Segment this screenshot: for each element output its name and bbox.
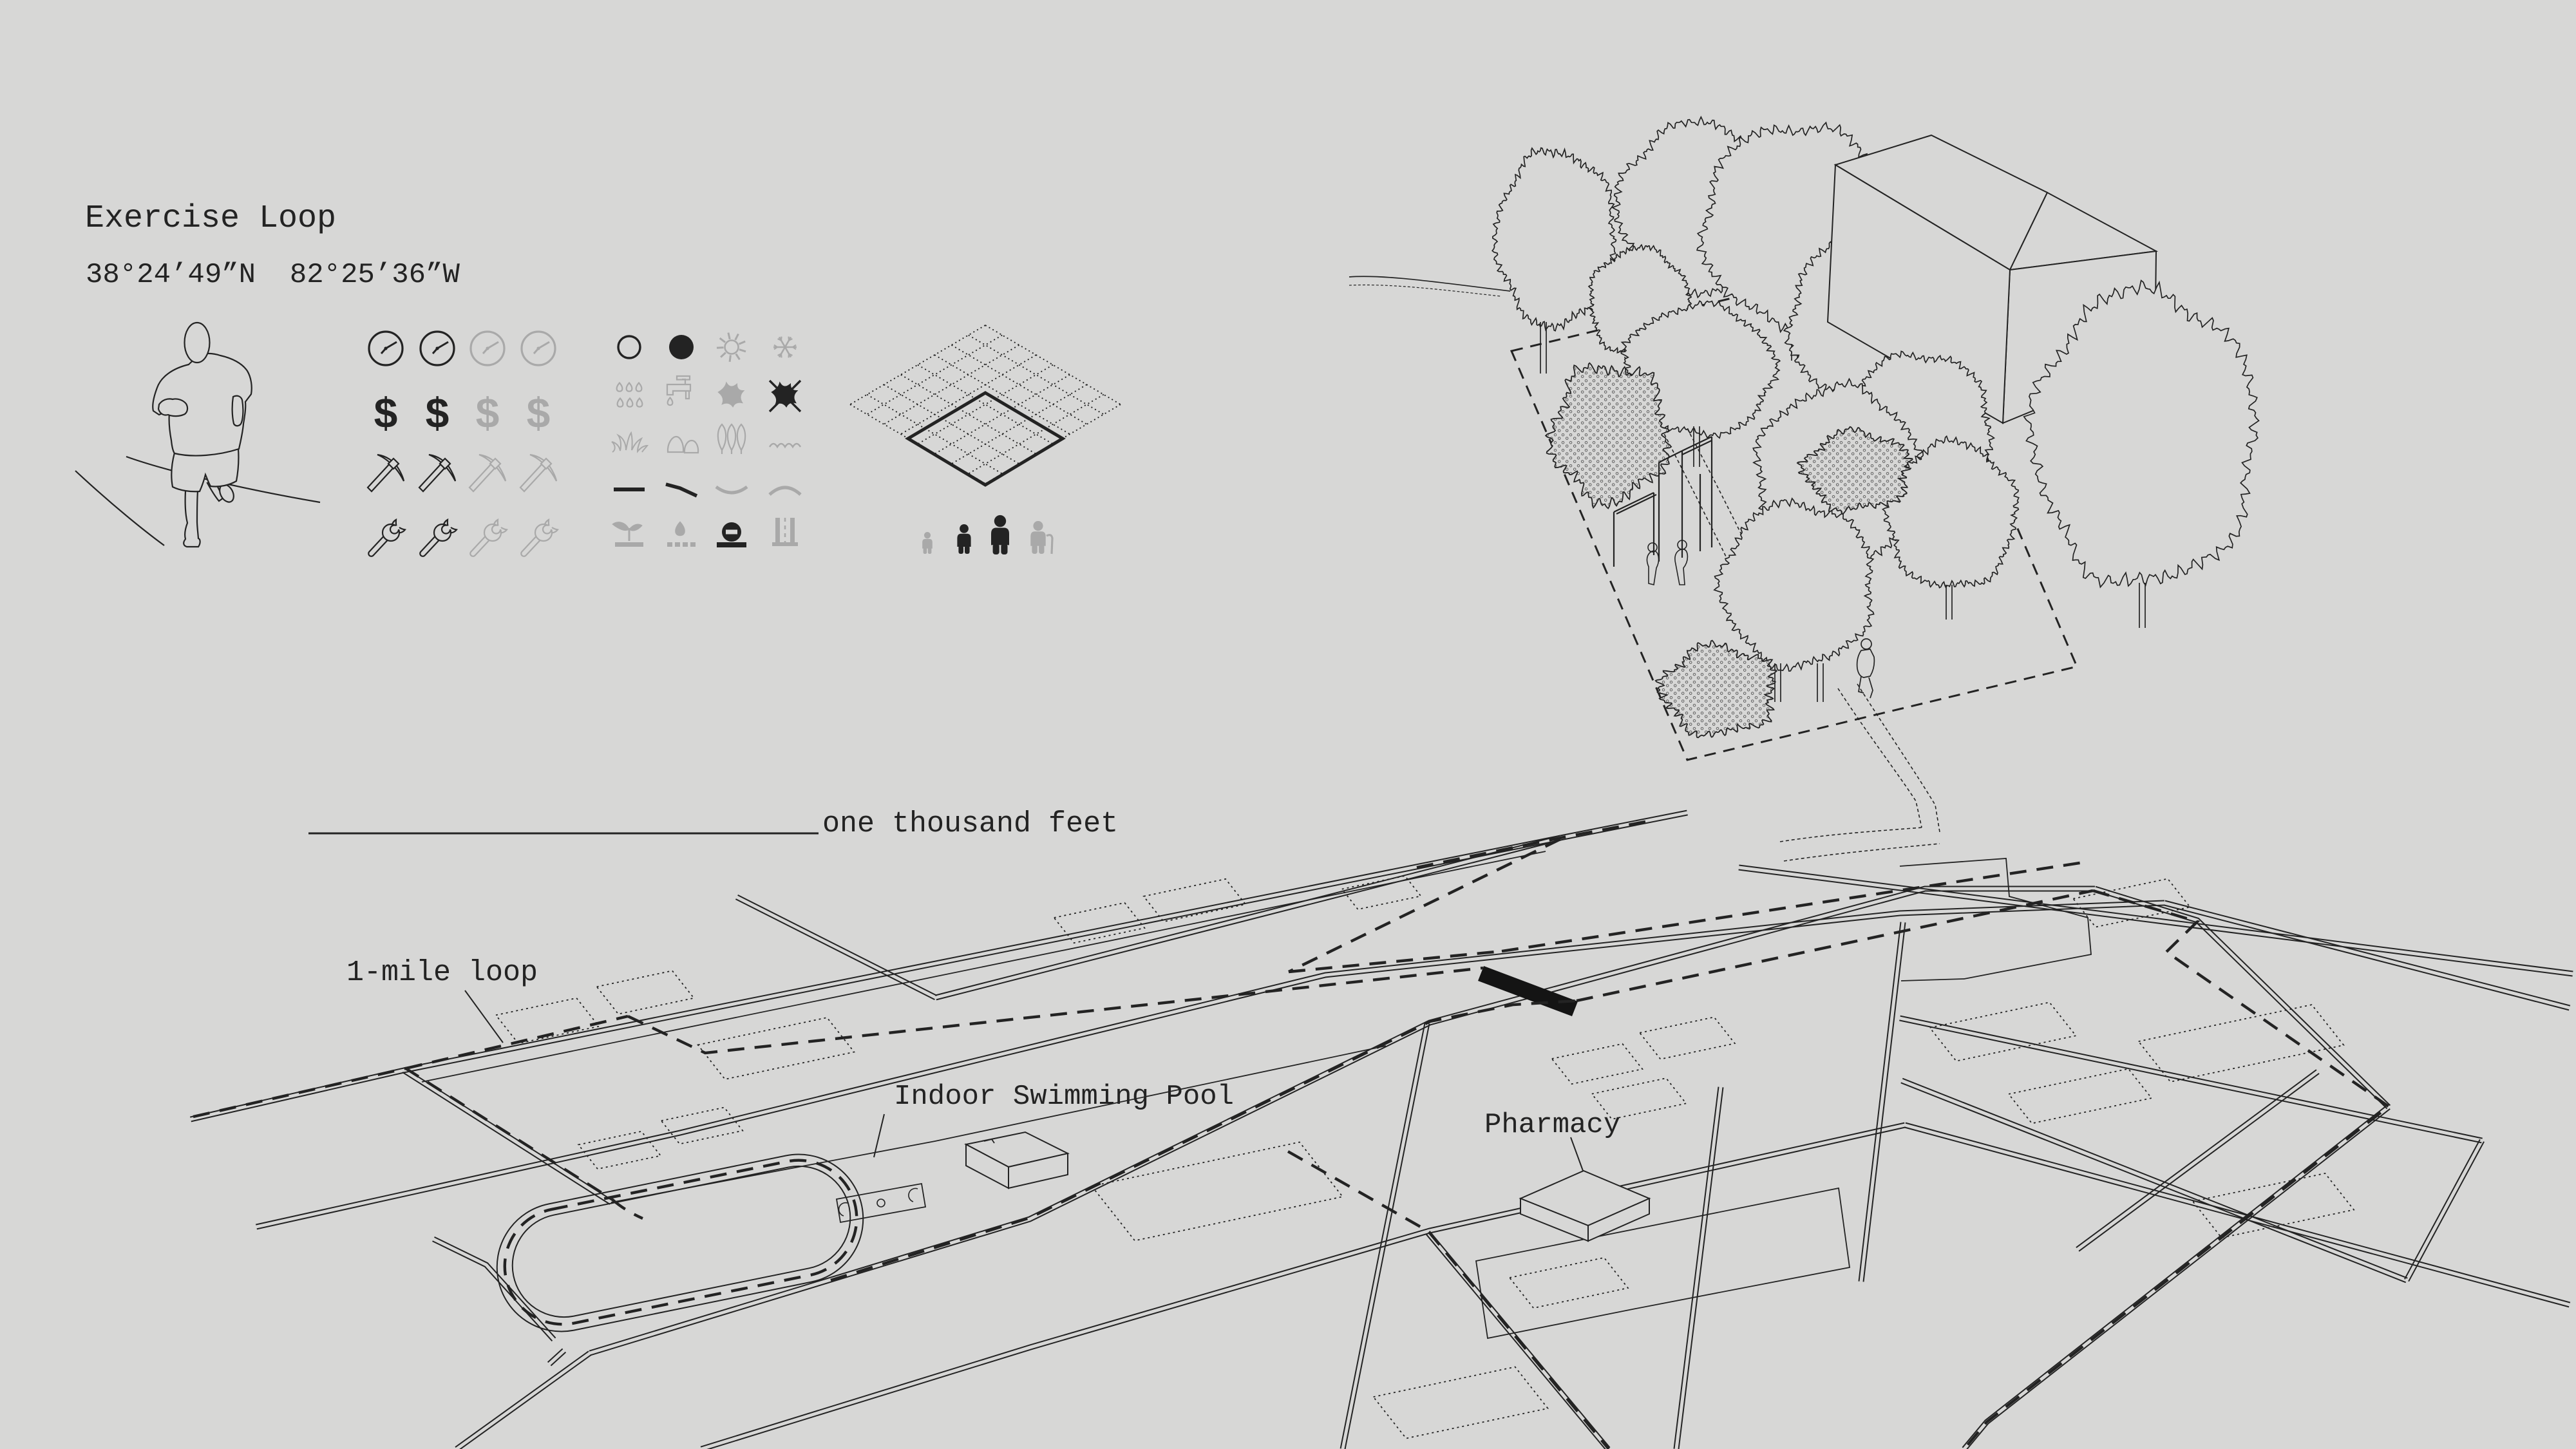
svg-text:$: $	[527, 389, 551, 437]
svg-text:Pharmacy: Pharmacy	[1484, 1109, 1620, 1141]
svg-text:$: $	[426, 389, 450, 437]
svg-text:one thousand feet: one thousand feet	[822, 808, 1118, 840]
svg-text:38°24’49”N 82°25’36”W: 38°24’49”N 82°25’36”W	[86, 259, 460, 291]
svg-text:$: $	[374, 389, 398, 437]
svg-text:Exercise Loop: Exercise Loop	[85, 200, 336, 237]
svg-text:Indoor Swimming Pool: Indoor Swimming Pool	[894, 1081, 1234, 1113]
svg-text:1-mile loop: 1-mile loop	[346, 956, 538, 989]
svg-text:$: $	[476, 389, 500, 437]
